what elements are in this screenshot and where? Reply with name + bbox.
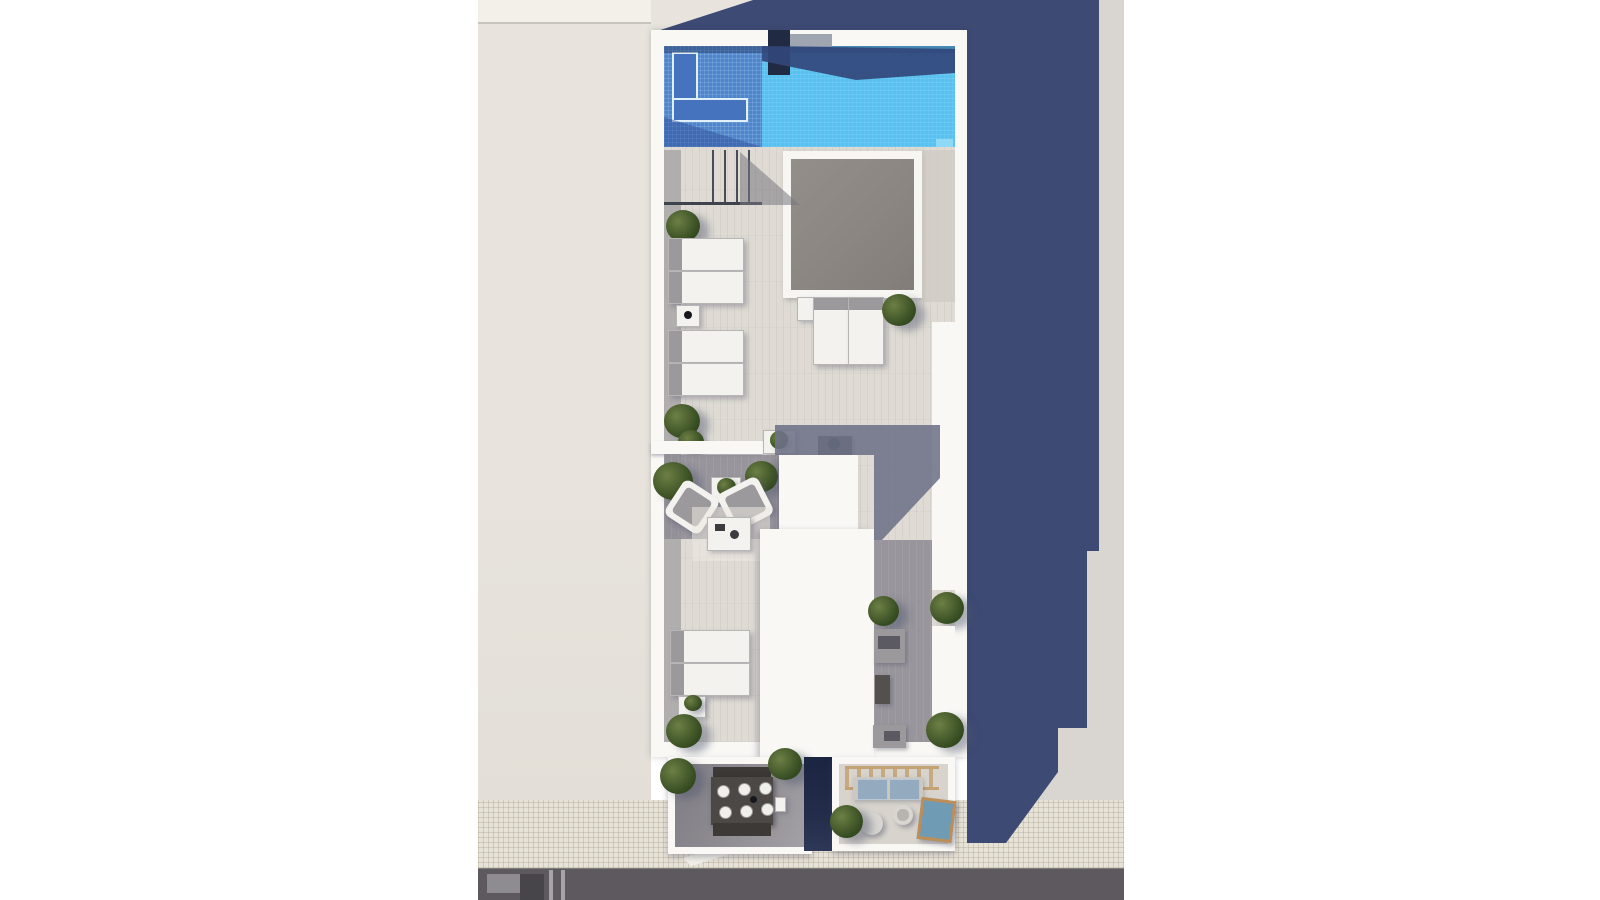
place-setting — [761, 803, 774, 816]
planter-bush — [868, 596, 899, 626]
skylight-glass — [791, 159, 914, 290]
lounger-headrest — [814, 298, 848, 310]
neighbor-parapet-edge — [478, 22, 651, 24]
lounger-headrest — [669, 331, 682, 362]
pool-rail-post — [712, 150, 714, 203]
coffee-table-decor — [715, 524, 725, 531]
planter-wall — [932, 626, 955, 716]
planter-bush — [930, 592, 964, 624]
chimney-ledge — [790, 34, 832, 47]
sofa-cushion — [889, 779, 920, 800]
pool-rail-post — [724, 150, 726, 203]
sun-lounger — [668, 363, 744, 396]
road-marking — [520, 874, 544, 900]
balcony-plant — [830, 805, 863, 838]
sofa-cushion — [857, 779, 888, 800]
corner-plant — [768, 748, 802, 780]
fire-bowl — [828, 438, 840, 450]
side-table — [797, 297, 814, 321]
lounger-headrest — [669, 272, 682, 303]
pool-chimney — [768, 30, 790, 75]
road-marking — [487, 874, 520, 893]
bench-cushion — [878, 636, 900, 649]
pool-rail-bar — [664, 202, 762, 205]
corner-plant — [660, 758, 696, 794]
sun-lounger — [813, 297, 849, 365]
tray-table-plant — [770, 431, 788, 449]
planter-bush — [666, 714, 702, 748]
pool-step-horizontal — [672, 98, 748, 122]
pool-corner-step — [936, 139, 953, 147]
road — [478, 868, 1124, 900]
sun-lounger — [848, 297, 884, 365]
sun-lounger — [668, 271, 744, 304]
neighbor-parapet-top — [478, 0, 651, 22]
table-decor — [684, 311, 692, 319]
roof-access-volume — [779, 455, 858, 529]
place-setting — [740, 805, 753, 818]
serving-cart — [775, 797, 786, 812]
place-setting — [738, 783, 751, 796]
stairwell-void — [804, 757, 834, 851]
low-table — [875, 675, 890, 704]
dining-bench — [713, 823, 771, 836]
coffee-table — [707, 517, 751, 551]
neighbor-building-roof — [478, 0, 651, 800]
lane-marking — [561, 870, 565, 900]
place-setting — [759, 782, 772, 795]
wooden-sun-lounger — [917, 797, 957, 843]
lounger-headrest — [671, 631, 684, 662]
lounger-headrest — [669, 239, 682, 270]
pouf — [893, 805, 913, 825]
place-setting — [719, 806, 732, 819]
sun-lounger — [670, 630, 750, 663]
lane-marking — [549, 870, 553, 900]
pool-rail-post — [748, 150, 750, 203]
sun-lounger — [668, 238, 744, 271]
terrace-divider-wall — [651, 441, 763, 454]
rooftop-render — [0, 0, 1600, 900]
pouf — [860, 812, 883, 835]
deck-strip-right — [922, 150, 955, 302]
side-table-plant — [684, 695, 702, 711]
bench-cushion — [884, 731, 900, 741]
coffee-table-decor — [730, 530, 739, 539]
sun-lounger — [668, 330, 744, 363]
lounger-headrest — [669, 364, 682, 395]
planter-wall — [932, 322, 955, 590]
ground-right — [967, 0, 1124, 868]
planter-bush — [926, 712, 964, 748]
planter-bush — [882, 294, 916, 326]
pool-rail-post — [736, 150, 738, 203]
neighbor-roof-wedge — [651, 0, 753, 33]
lounger-headrest — [849, 298, 883, 310]
pool-parapet-shadow — [664, 46, 955, 53]
roof-access-volume-large — [760, 529, 874, 757]
sun-lounger — [670, 663, 750, 696]
place-setting — [717, 785, 730, 798]
lounger-headrest — [671, 664, 684, 695]
centerpiece — [750, 796, 757, 803]
